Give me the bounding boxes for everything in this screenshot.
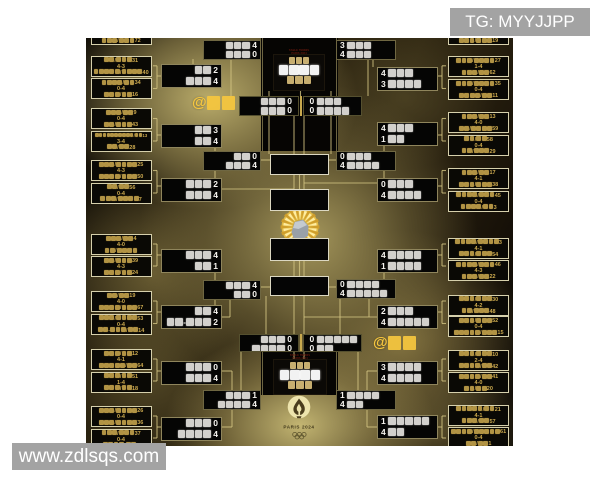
svg-text:PARIS 2024: PARIS 2024 (283, 425, 314, 430)
